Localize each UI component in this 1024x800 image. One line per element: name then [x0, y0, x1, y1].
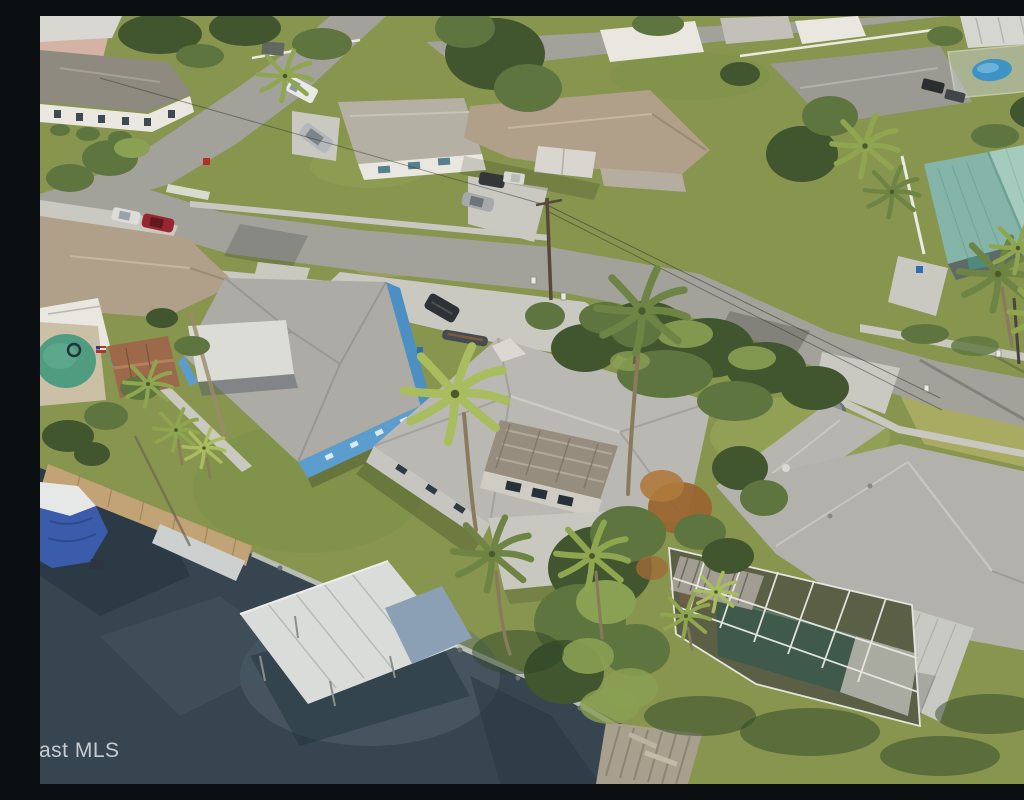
- blue-bin: [417, 347, 423, 353]
- aerial-photo-canvas: ast MLS: [40, 16, 1024, 784]
- american-flag: [96, 346, 106, 353]
- satellite-dish: [782, 464, 790, 472]
- blue-bin: [916, 266, 923, 273]
- mls-aerial-photo: ast MLS: [40, 16, 1024, 784]
- mls-watermark: ast MLS: [40, 739, 120, 762]
- awning: [960, 16, 1024, 48]
- gray-shed: [261, 41, 284, 56]
- stop-sign: [203, 158, 210, 165]
